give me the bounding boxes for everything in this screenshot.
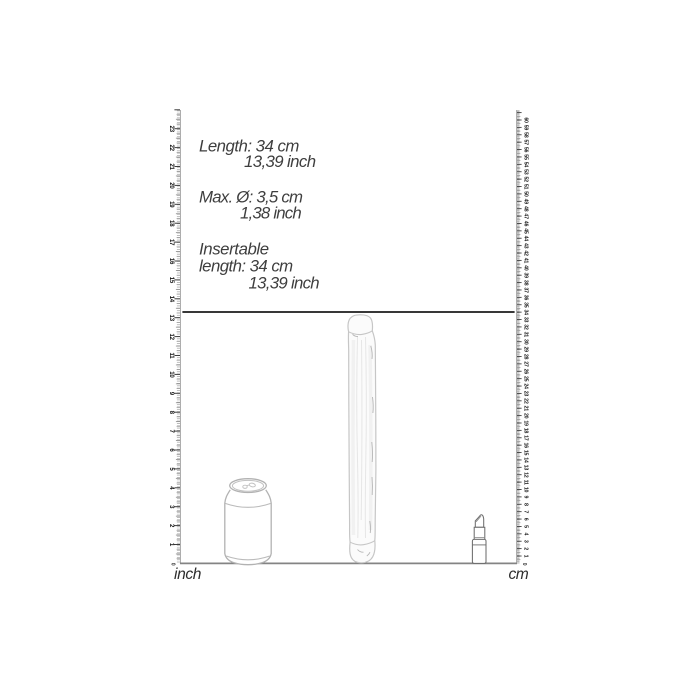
svg-text:15: 15	[522, 450, 528, 456]
svg-text:4: 4	[522, 533, 528, 536]
svg-text:23: 23	[522, 391, 528, 397]
svg-text:13,39 inch: 13,39 inch	[244, 152, 316, 171]
svg-text:30: 30	[522, 339, 528, 345]
svg-text:48: 48	[522, 206, 528, 212]
svg-text:6: 6	[522, 518, 528, 521]
svg-text:36: 36	[522, 295, 528, 301]
svg-text:8: 8	[522, 503, 528, 506]
svg-text:22: 22	[168, 144, 175, 151]
svg-text:21: 21	[522, 406, 528, 412]
svg-text:12: 12	[522, 472, 528, 478]
svg-text:17: 17	[522, 435, 528, 441]
svg-text:37: 37	[522, 287, 528, 293]
svg-text:14: 14	[168, 296, 175, 303]
svg-text:5: 5	[522, 525, 528, 528]
svg-text:55: 55	[522, 154, 528, 160]
svg-text:20: 20	[522, 413, 528, 419]
svg-text:19: 19	[522, 420, 528, 426]
svg-text:24: 24	[522, 383, 528, 389]
svg-text:3: 3	[522, 540, 528, 543]
svg-text:13: 13	[522, 465, 528, 471]
svg-text:56: 56	[522, 147, 528, 153]
svg-text:11: 11	[522, 480, 528, 485]
svg-text:59: 59	[522, 125, 528, 131]
svg-text:18: 18	[522, 428, 528, 434]
svg-text:15: 15	[168, 277, 175, 284]
svg-text:52: 52	[522, 176, 528, 182]
svg-text:25: 25	[522, 376, 528, 382]
svg-text:13: 13	[168, 315, 175, 322]
svg-text:1,38 inch: 1,38 inch	[240, 204, 301, 223]
svg-text:19: 19	[168, 201, 175, 208]
svg-text:34: 34	[522, 309, 528, 315]
svg-text:43: 43	[522, 243, 528, 249]
svg-text:54: 54	[522, 162, 528, 168]
svg-text:50: 50	[522, 191, 528, 197]
svg-text:18: 18	[168, 220, 175, 227]
svg-text:12: 12	[168, 333, 175, 340]
svg-text:45: 45	[522, 228, 528, 234]
svg-text:32: 32	[522, 324, 528, 330]
svg-text:17: 17	[168, 239, 175, 246]
svg-text:44: 44	[522, 236, 528, 242]
svg-text:1: 1	[522, 555, 528, 558]
svg-text:29: 29	[522, 346, 528, 352]
svg-text:9: 9	[522, 496, 528, 499]
svg-text:16: 16	[522, 443, 528, 449]
svg-text:10: 10	[168, 371, 175, 378]
svg-text:21: 21	[168, 163, 175, 170]
svg-text:53: 53	[522, 169, 528, 175]
svg-text:27: 27	[522, 361, 528, 367]
svg-text:26: 26	[522, 369, 528, 375]
svg-text:14: 14	[522, 457, 528, 463]
svg-text:51: 51	[522, 184, 528, 190]
svg-text:46: 46	[522, 221, 528, 227]
svg-text:7: 7	[522, 510, 528, 513]
svg-text:11: 11	[168, 353, 175, 360]
svg-text:20: 20	[168, 182, 175, 189]
svg-text:10: 10	[522, 487, 528, 493]
svg-text:33: 33	[522, 317, 528, 323]
svg-text:42: 42	[522, 250, 528, 256]
svg-text:28: 28	[522, 354, 528, 360]
svg-text:58: 58	[522, 132, 528, 138]
svg-text:cm: cm	[509, 566, 529, 583]
svg-text:22: 22	[522, 398, 528, 404]
svg-text:47: 47	[522, 213, 528, 219]
svg-text:39: 39	[522, 273, 528, 279]
svg-text:16: 16	[168, 258, 175, 265]
svg-text:inch: inch	[174, 566, 201, 583]
svg-text:38: 38	[522, 280, 528, 286]
svg-text:31: 31	[522, 332, 528, 338]
svg-text:40: 40	[522, 265, 528, 271]
svg-text:13,39 inch: 13,39 inch	[249, 274, 320, 293]
svg-text:57: 57	[522, 140, 528, 146]
svg-text:35: 35	[522, 302, 528, 308]
svg-text:41: 41	[522, 258, 528, 264]
svg-text:2: 2	[522, 547, 528, 550]
svg-text:60: 60	[522, 117, 528, 123]
svg-text:23: 23	[168, 126, 175, 133]
svg-text:49: 49	[522, 199, 528, 205]
